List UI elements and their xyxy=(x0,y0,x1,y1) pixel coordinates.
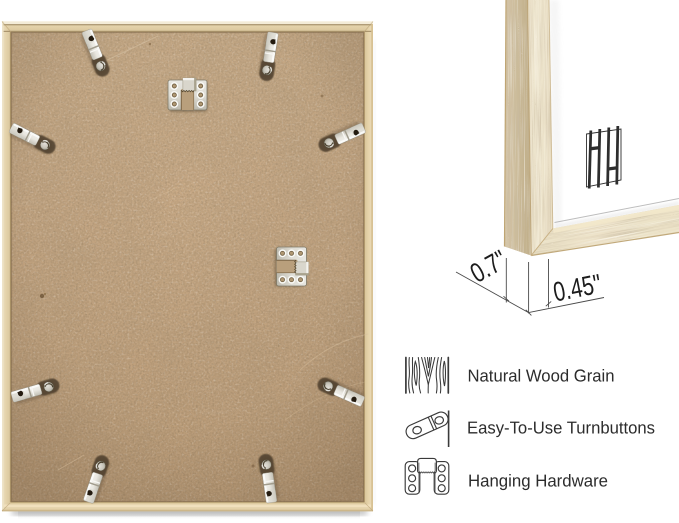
svg-text:Natural Wood Grain: Natural Wood Grain xyxy=(468,366,615,386)
svg-text:Easy-To-Use Turnbuttons: Easy-To-Use Turnbuttons xyxy=(467,418,655,438)
svg-text:Hanging Hardware: Hanging Hardware xyxy=(468,471,608,491)
